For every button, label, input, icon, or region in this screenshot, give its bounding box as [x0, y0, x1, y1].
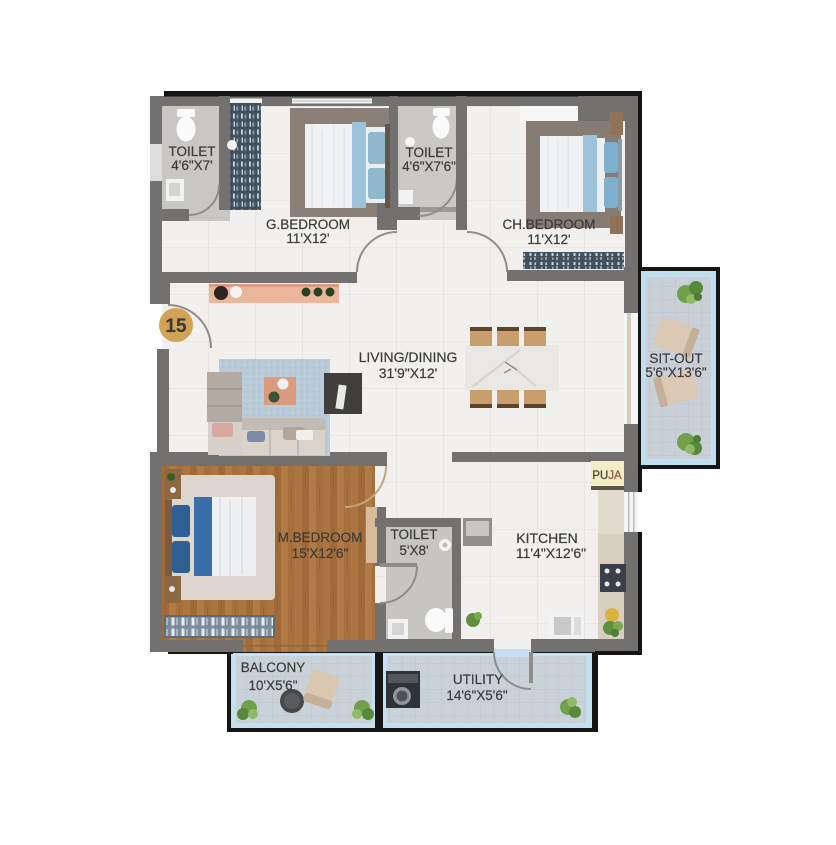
svg-text:SIT-OUT: SIT-OUT: [649, 351, 702, 366]
svg-text:14'6"X5'6": 14'6"X5'6": [446, 688, 507, 703]
svg-text:11'X12': 11'X12': [286, 231, 329, 246]
svg-text:4'6"X7'6": 4'6"X7'6": [402, 159, 456, 174]
svg-text:TOILET: TOILET: [390, 527, 437, 542]
svg-text:G.BEDROOM: G.BEDROOM: [266, 217, 350, 232]
svg-text:UTILITY: UTILITY: [453, 672, 503, 687]
svg-text:CH.BEDROOM: CH.BEDROOM: [502, 217, 595, 232]
svg-text:4'6"X7': 4'6"X7': [171, 158, 212, 173]
svg-text:BALCONY: BALCONY: [241, 660, 306, 675]
svg-text:PUJA: PUJA: [592, 470, 622, 482]
svg-text:LIVING/DINING: LIVING/DINING: [359, 349, 458, 365]
svg-text:M.BEDROOM: M.BEDROOM: [278, 530, 363, 545]
svg-text:10'X5'6": 10'X5'6": [249, 678, 298, 693]
svg-text:TOILET: TOILET: [405, 145, 452, 160]
svg-text:15'X12'6": 15'X12'6": [292, 546, 349, 561]
svg-text:KITCHEN: KITCHEN: [516, 530, 577, 546]
svg-text:5'6"X13'6": 5'6"X13'6": [645, 365, 706, 380]
svg-text:31'9"X12': 31'9"X12': [379, 365, 438, 381]
svg-text:11'4"X12'6": 11'4"X12'6": [516, 545, 586, 561]
svg-text:TOILET: TOILET: [168, 144, 215, 159]
svg-text:5'X8': 5'X8': [399, 543, 428, 558]
svg-text:11'X12': 11'X12': [527, 232, 570, 247]
svg-text:15: 15: [165, 316, 187, 337]
